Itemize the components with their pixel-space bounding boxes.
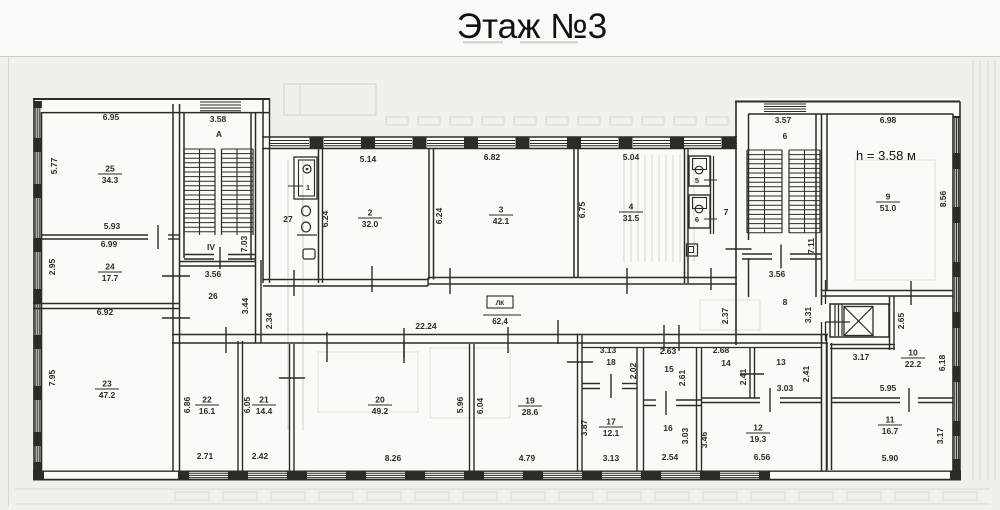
svg-text:2.41: 2.41 (801, 365, 811, 382)
svg-text:6.99: 6.99 (101, 239, 118, 249)
svg-text:5.04: 5.04 (623, 152, 640, 162)
svg-text:7.95: 7.95 (47, 369, 57, 386)
svg-text:14.4: 14.4 (256, 406, 273, 416)
svg-text:3.31: 3.31 (803, 306, 813, 323)
svg-text:6.82: 6.82 (484, 152, 501, 162)
svg-text:2.71: 2.71 (197, 451, 214, 461)
svg-text:27: 27 (283, 214, 293, 224)
svg-text:3.13: 3.13 (603, 453, 620, 463)
svg-text:23: 23 (102, 379, 112, 389)
svg-text:22: 22 (202, 395, 212, 405)
svg-text:5.95: 5.95 (880, 383, 897, 393)
svg-text:19.3: 19.3 (750, 434, 767, 444)
svg-text:31.5: 31.5 (623, 213, 640, 223)
svg-text:28.6: 28.6 (522, 407, 539, 417)
svg-text:1: 1 (306, 183, 310, 192)
svg-text:3.56: 3.56 (769, 269, 786, 279)
svg-text:5: 5 (695, 176, 699, 185)
svg-text:62,4: 62,4 (492, 317, 508, 326)
svg-text:2.37: 2.37 (720, 307, 730, 324)
svg-text:26: 26 (208, 291, 218, 301)
svg-text:2.68: 2.68 (713, 345, 730, 355)
svg-text:17: 17 (606, 417, 616, 427)
svg-text:6: 6 (695, 215, 699, 224)
svg-text:49.2: 49.2 (372, 406, 389, 416)
svg-text:20: 20 (375, 395, 385, 405)
svg-text:22.2: 22.2 (905, 359, 922, 369)
svg-text:2: 2 (368, 208, 373, 218)
svg-text:2.42: 2.42 (252, 451, 269, 461)
svg-text:ЛК: ЛК (496, 300, 505, 307)
svg-text:6.75: 6.75 (577, 201, 587, 218)
svg-text:11: 11 (886, 415, 895, 425)
svg-text:6.24: 6.24 (320, 210, 330, 227)
svg-text:5.93: 5.93 (104, 221, 121, 231)
svg-text:6.05: 6.05 (242, 396, 252, 413)
svg-text:7: 7 (724, 207, 729, 217)
svg-text:3.46: 3.46 (699, 431, 709, 448)
svg-text:3: 3 (499, 205, 504, 215)
svg-text:8.26: 8.26 (385, 453, 402, 463)
svg-text:6.04: 6.04 (475, 397, 485, 414)
svg-text:51.0: 51.0 (880, 203, 897, 213)
svg-text:2.63: 2.63 (660, 346, 677, 356)
svg-text:2.34: 2.34 (264, 312, 274, 329)
svg-text:16.7: 16.7 (882, 426, 899, 436)
svg-text:3.03: 3.03 (777, 383, 794, 393)
svg-text:3.57: 3.57 (775, 115, 792, 125)
svg-text:А: А (216, 129, 222, 139)
svg-text:3.87: 3.87 (579, 419, 589, 436)
svg-text:12.1: 12.1 (603, 428, 620, 438)
svg-text:h = 3.58 м: h = 3.58 м (856, 148, 916, 163)
svg-text:5.96: 5.96 (455, 396, 465, 413)
svg-text:9: 9 (886, 192, 891, 202)
svg-text:4: 4 (629, 202, 634, 212)
svg-text:47.2: 47.2 (99, 390, 116, 400)
svg-text:34.3: 34.3 (102, 175, 119, 185)
svg-text:5.90: 5.90 (882, 453, 899, 463)
svg-text:2.95: 2.95 (47, 258, 57, 275)
svg-text:IV: IV (207, 242, 215, 252)
svg-text:10: 10 (908, 348, 918, 358)
svg-text:7.03: 7.03 (239, 235, 249, 252)
svg-text:7.11: 7.11 (806, 238, 816, 254)
svg-text:16.1: 16.1 (199, 406, 216, 416)
svg-text:15: 15 (664, 364, 674, 374)
svg-text:42.1: 42.1 (493, 216, 510, 226)
svg-text:13: 13 (776, 357, 786, 367)
svg-text:3.17: 3.17 (853, 352, 870, 362)
svg-text:22.24: 22.24 (415, 321, 437, 331)
svg-text:2.41: 2.41 (738, 368, 748, 385)
svg-text:6.95: 6.95 (103, 112, 120, 122)
svg-text:25: 25 (105, 164, 115, 174)
svg-text:3.13: 3.13 (600, 345, 617, 355)
svg-text:2.54: 2.54 (662, 452, 679, 462)
svg-text:3.17: 3.17 (935, 427, 945, 444)
svg-text:5.77: 5.77 (49, 157, 59, 174)
svg-text:3.03: 3.03 (680, 427, 690, 444)
svg-text:6.86: 6.86 (182, 396, 192, 413)
svg-text:6.56: 6.56 (754, 452, 771, 462)
svg-text:12: 12 (753, 423, 763, 433)
svg-text:2.65: 2.65 (896, 312, 906, 329)
svg-text:6.92: 6.92 (97, 307, 114, 317)
svg-text:3.44: 3.44 (240, 297, 250, 314)
svg-text:3.56: 3.56 (205, 269, 222, 279)
svg-text:32.0: 32.0 (362, 219, 379, 229)
svg-text:5.14: 5.14 (360, 154, 377, 164)
svg-text:19: 19 (525, 396, 535, 406)
svg-text:4.79: 4.79 (519, 453, 536, 463)
svg-text:17.7: 17.7 (102, 273, 119, 283)
svg-text:24: 24 (105, 262, 115, 272)
svg-text:8.56: 8.56 (938, 190, 948, 207)
svg-text:14: 14 (721, 358, 731, 368)
svg-text:3.58: 3.58 (210, 114, 227, 124)
svg-text:16: 16 (663, 423, 673, 433)
svg-text:Этаж №3: Этаж №3 (457, 7, 607, 46)
svg-text:2.61: 2.61 (677, 369, 687, 386)
svg-text:8: 8 (783, 297, 788, 307)
svg-text:18: 18 (606, 357, 616, 367)
svg-text:6.18: 6.18 (937, 354, 947, 371)
svg-text:6.24: 6.24 (434, 207, 444, 224)
svg-text:21: 21 (259, 395, 269, 405)
svg-text:6: 6 (783, 131, 788, 141)
svg-text:6.98: 6.98 (880, 115, 897, 125)
